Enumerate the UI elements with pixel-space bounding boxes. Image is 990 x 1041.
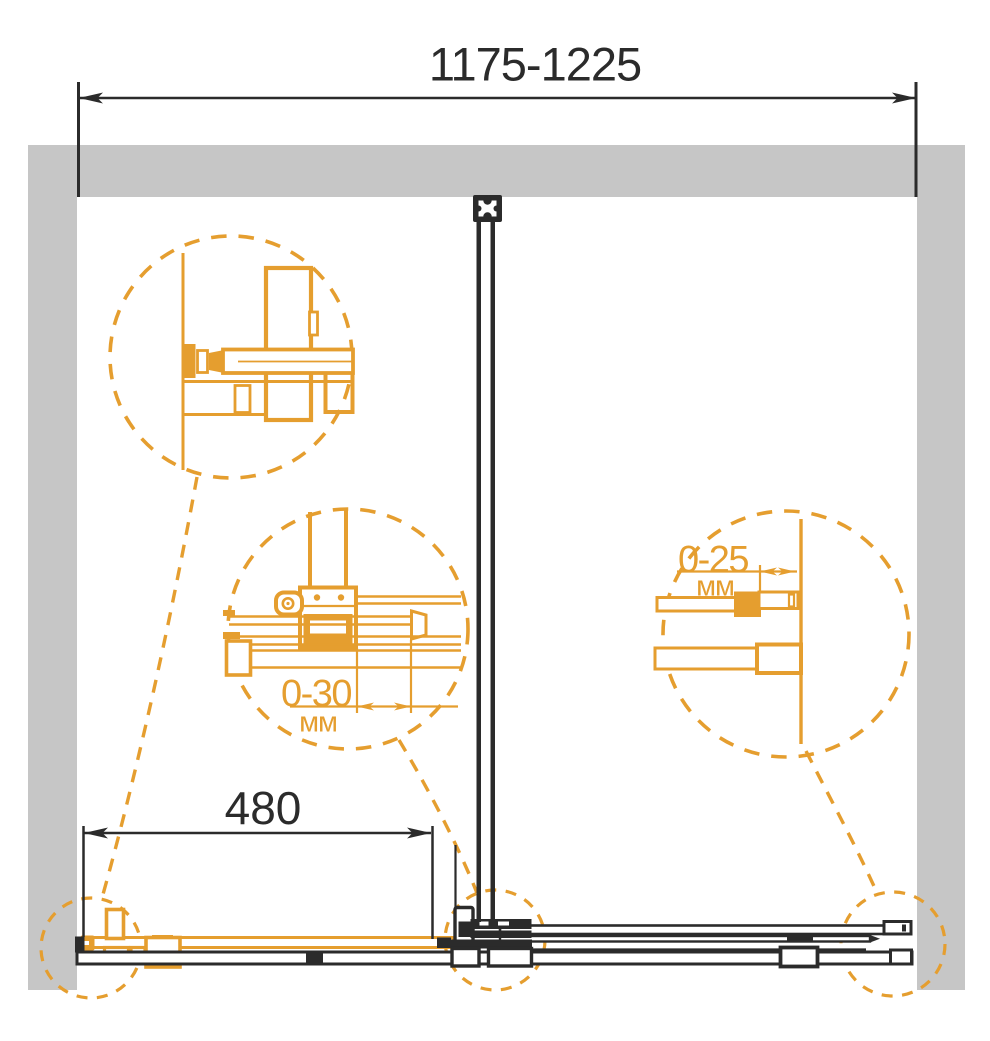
fixed-panel-rail-top — [500, 926, 911, 935]
fixed-glass-panel — [473, 195, 502, 922]
glass-panel-edge-right — [491, 221, 496, 922]
diagram-canvas — [0, 0, 990, 1041]
overall-width-label: 1175-1225 — [429, 41, 641, 88]
wall-clamp-plate — [184, 344, 196, 378]
leader-line-left — [102, 477, 197, 898]
track-clip — [306, 954, 323, 963]
installation-diagram: 1175-1225 480 0-30 мм 0-25 мм — [0, 0, 990, 1041]
glass-panel-edge-left — [477, 221, 482, 922]
wall-structure — [28, 145, 965, 990]
track-end-block — [891, 950, 912, 964]
screw-icon — [338, 594, 344, 600]
glass-profile — [266, 268, 311, 420]
track-block — [781, 948, 818, 967]
left-bracket — [227, 641, 251, 675]
center-adjustment-unit-label: мм — [299, 709, 337, 738]
profile-end-cap — [734, 592, 761, 618]
door-width-label: 480 — [225, 785, 302, 831]
wall-adjustment-unit-label: мм — [696, 573, 734, 602]
profile-tab — [310, 312, 318, 335]
wall-top-band — [28, 145, 965, 197]
rail-end-plate — [412, 611, 427, 639]
door-width-dimension — [84, 826, 433, 939]
profile-clip — [235, 386, 250, 413]
leader-line-center — [399, 740, 477, 893]
wall-bracket-detail — [183, 253, 353, 470]
track-wall-anchor — [75, 937, 85, 953]
fixed-panel-rail-mid — [500, 936, 870, 942]
wall-left-column — [28, 197, 77, 990]
leader-line-right — [806, 751, 878, 895]
screw-icon — [314, 594, 320, 600]
wall-right-column — [917, 197, 965, 990]
door-rail-end-cap — [437, 938, 451, 949]
roller-bracket-1 — [107, 910, 124, 939]
